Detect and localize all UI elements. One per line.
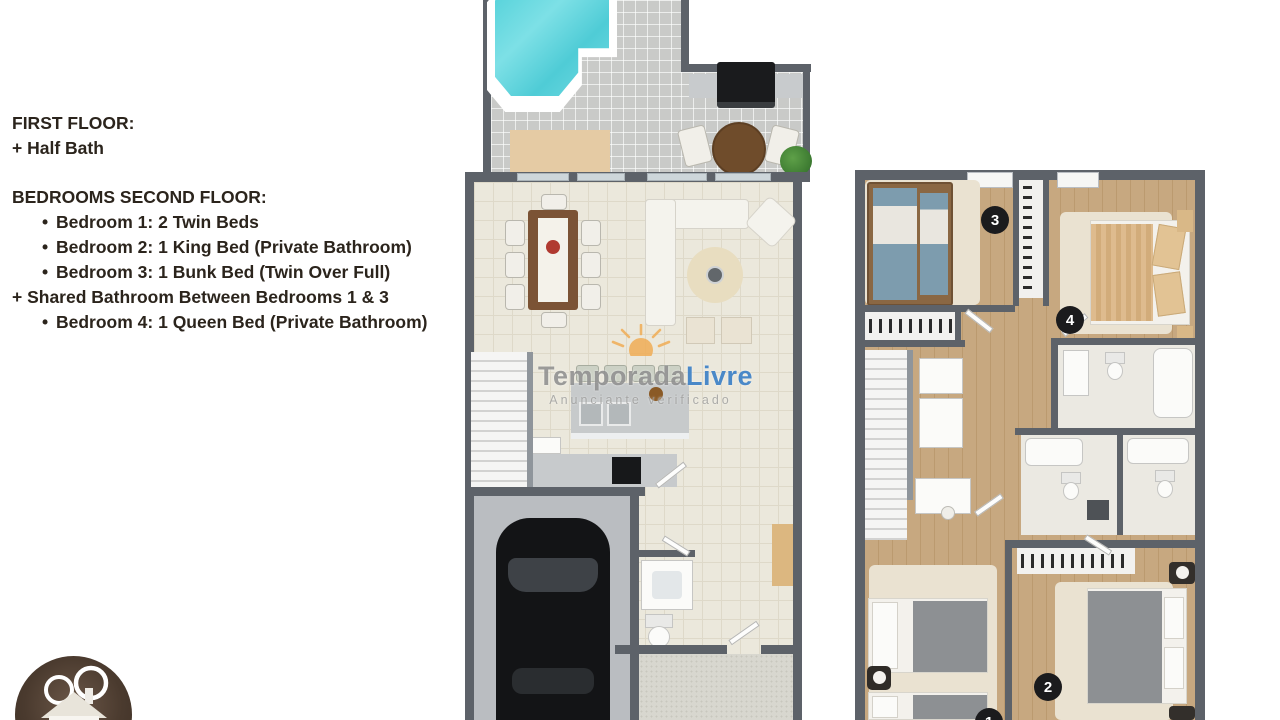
bedroom4-wall — [1051, 338, 1205, 345]
closet — [865, 312, 961, 340]
info-panel: FIRST FLOOR: + Half Bath BEDROOMS SECOND… — [12, 111, 462, 335]
bathroom-vanity — [1063, 350, 1089, 396]
dining-chair — [541, 194, 567, 210]
car — [496, 518, 610, 720]
dining-chair — [505, 220, 525, 246]
toilet — [1107, 362, 1123, 380]
grill-icon — [717, 62, 775, 108]
second-floor-plan: 3 4 — [855, 170, 1205, 720]
closet — [1019, 180, 1043, 298]
bedroom2-bed — [1087, 588, 1187, 704]
spacer — [12, 161, 462, 185]
patio-table — [712, 122, 766, 176]
bed-blanket — [913, 601, 987, 672]
kitchen-counter — [527, 454, 677, 487]
wall-top — [855, 170, 1205, 180]
bed-pillow — [1152, 271, 1186, 316]
sliding-door-glass — [715, 173, 771, 181]
bedroom-3-item: •Bedroom 3: 1 Bunk Bed (Twin Over Full) — [12, 260, 462, 285]
house-mouse-ears-icon — [15, 656, 132, 720]
dining-table — [528, 210, 578, 310]
sliding-door-glass — [647, 173, 707, 181]
hall-wall — [615, 645, 727, 654]
bathtub — [1153, 348, 1193, 418]
bed-blanket — [1091, 224, 1153, 321]
garage-wall-top — [465, 487, 645, 496]
toilet — [1063, 482, 1079, 500]
deck-wall-right — [681, 0, 689, 72]
cooktop-icon — [612, 457, 641, 484]
closet-hangers-icon — [869, 319, 957, 333]
bed-pillow — [1164, 597, 1184, 639]
window — [1057, 172, 1099, 188]
dining-chair — [581, 220, 601, 246]
hall-wall — [1051, 338, 1058, 435]
bathroom-vanity — [641, 560, 693, 610]
bedroom1-twin-bed — [868, 598, 988, 673]
dining-chair — [581, 252, 601, 278]
dining-chair — [505, 284, 525, 310]
closet — [1017, 548, 1135, 574]
bathroom-wall — [1117, 435, 1123, 535]
bathtub — [1025, 438, 1083, 466]
closet-wall — [1043, 180, 1049, 306]
closet-hangers-icon — [1023, 186, 1032, 292]
bedroom1-twin-bed — [868, 692, 988, 720]
sliding-door-glass — [577, 173, 625, 181]
bedroom2-badge: 2 — [1034, 673, 1062, 701]
closet-hangers-icon — [1021, 554, 1131, 568]
stool — [941, 506, 955, 520]
bedroom-divider-wall — [1005, 540, 1012, 720]
staircase — [471, 352, 527, 488]
shared-bathroom-note: + Shared Bathroom Between Bedrooms 1 & 3 — [12, 285, 462, 310]
toilet — [1157, 480, 1173, 498]
nightstand-lamp — [1169, 706, 1195, 720]
flower-centerpiece — [546, 240, 560, 254]
bunk-bed — [867, 182, 953, 306]
staircase — [865, 350, 907, 540]
bedroom4-badge: 4 — [1056, 306, 1084, 334]
nightstand — [1177, 210, 1193, 232]
bed-blanket — [1088, 591, 1162, 703]
bedroom-2-item: •Bedroom 2: 1 King Bed (Private Bathroom… — [12, 235, 462, 260]
closet-wall — [955, 312, 961, 347]
dining-chair — [505, 252, 525, 278]
house-wall-right — [793, 172, 802, 720]
bedroom-1-item: •Bedroom 1: 2 Twin Beds — [12, 210, 462, 235]
bathroom-wall — [1015, 428, 1205, 435]
bathroom-sink — [1087, 500, 1109, 520]
bunk-mattress — [920, 193, 948, 295]
lamp-icon — [873, 671, 886, 684]
dining-chair — [581, 284, 601, 310]
watermark: TemporadaLivre Anunciante verificado — [538, 324, 743, 407]
bedroom4-bed — [1090, 220, 1190, 325]
bedroom3-badge: 3 — [981, 206, 1009, 234]
floorplan-listing-image: FIRST FLOOR: + Half Bath BEDROOMS SECOND… — [0, 0, 1280, 720]
first-floor-item: + Half Bath — [12, 136, 462, 161]
bathtub — [1127, 438, 1189, 464]
stair-wall — [907, 350, 913, 500]
bedroom3-wall — [865, 305, 1015, 312]
carpet-room — [639, 654, 793, 720]
lamp-icon — [1176, 566, 1189, 579]
desk — [772, 524, 793, 586]
watermark-tagline: Anunciante verificado — [538, 393, 743, 407]
watermark-brand: TemporadaLivre — [538, 361, 743, 392]
laundry-unit — [919, 358, 963, 394]
wall-left — [855, 170, 865, 720]
sectional-sofa — [645, 199, 676, 326]
agency-logo — [15, 656, 132, 720]
second-floor-heading: BEDROOMS SECOND FLOOR: — [12, 185, 462, 210]
bunk-mattress — [873, 188, 917, 300]
car-rear-window — [512, 668, 594, 694]
sun-icon — [609, 324, 673, 356]
garage-wall-right — [630, 487, 639, 720]
closet-wall — [865, 340, 965, 347]
table-runner — [538, 218, 568, 302]
bed-pillow — [1164, 647, 1184, 689]
wall-right — [1195, 170, 1205, 720]
hall-wall — [761, 645, 793, 654]
bed-pillow — [872, 602, 898, 669]
sink — [652, 571, 682, 599]
bedroom-4-item: •Bedroom 4: 1 Queen Bed (Private Bathroo… — [12, 310, 462, 335]
sliding-door-glass — [517, 173, 569, 181]
coffee-table — [706, 266, 724, 284]
first-floor-heading: FIRST FLOOR: — [12, 111, 462, 136]
laundry-unit — [919, 398, 963, 448]
bed-pillow — [872, 696, 898, 718]
stair-wall — [527, 352, 533, 488]
car-windshield — [508, 558, 598, 592]
